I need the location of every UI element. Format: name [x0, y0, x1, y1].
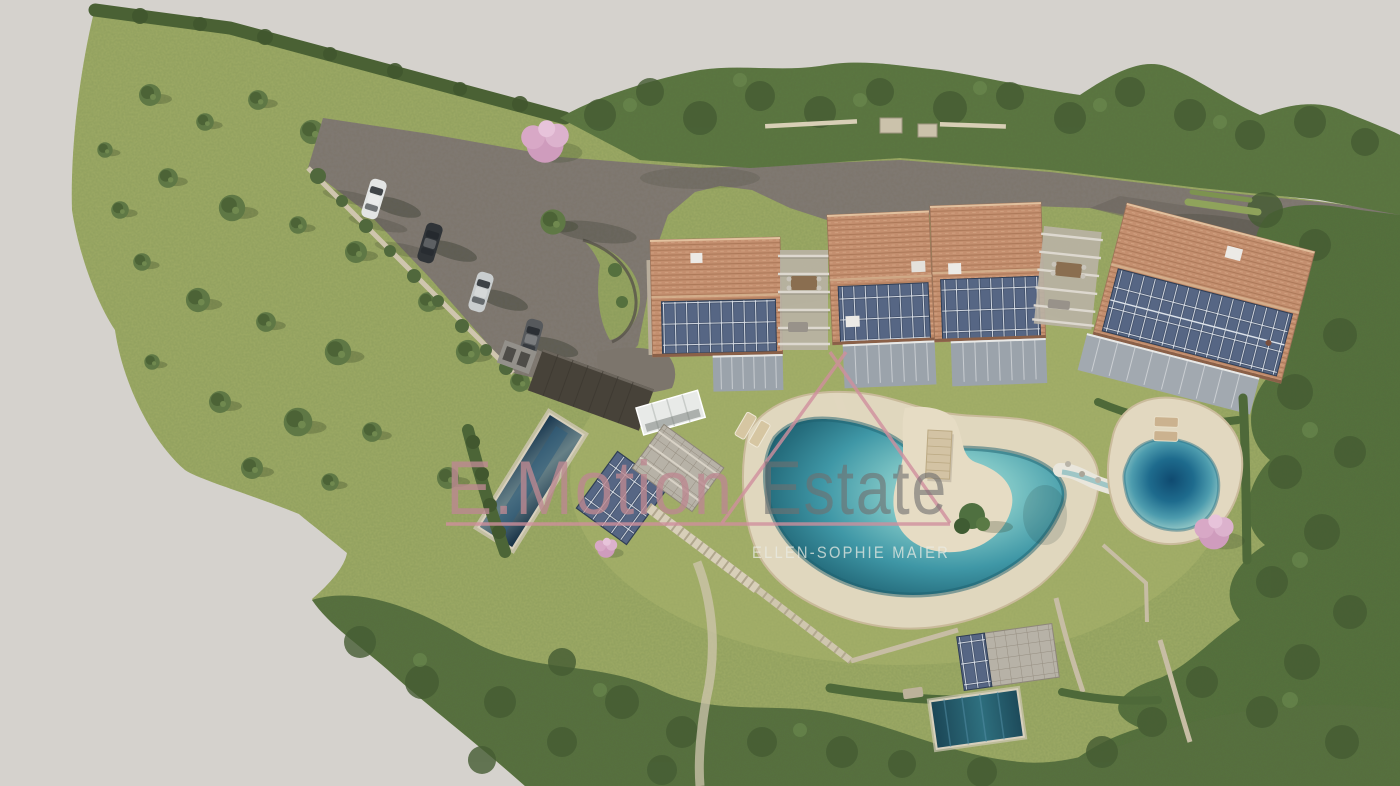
brand-word-2: Estate [760, 446, 948, 531]
watermark-subtitle: ELLEN-SOPHIE MAIER [752, 544, 950, 562]
solar-array-1 [661, 299, 776, 354]
aerial-render: landscaped hillside grounds olive grove … [0, 0, 1400, 786]
solar-array-3 [941, 276, 1041, 339]
facade-1 [713, 354, 784, 392]
watermark-wordmark: E.Motion Estate [446, 446, 948, 531]
solar-array-2 [838, 283, 930, 343]
outdoor-table [791, 276, 817, 290]
roof-court-2 [1032, 226, 1104, 330]
scene-canvas: landscaped hillside grounds olive grove … [0, 0, 1400, 786]
roof-court-1 [778, 250, 830, 350]
biotope-water [1124, 439, 1219, 530]
brand-word-1: E.Motion [446, 446, 734, 531]
